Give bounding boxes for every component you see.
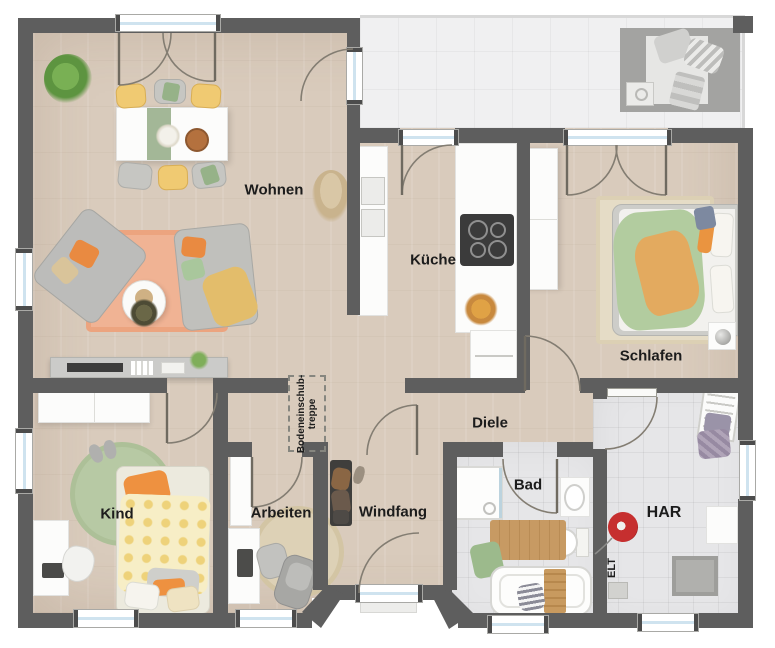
wall (557, 442, 593, 457)
cooktop (460, 214, 514, 266)
window-utility-bottom (637, 613, 699, 632)
wall (457, 442, 503, 457)
wall (347, 18, 360, 49)
dining-chair (154, 79, 186, 104)
pillow (709, 264, 734, 313)
wall (327, 585, 357, 600)
sofa-pillow (181, 236, 207, 258)
wood-bath-mat (490, 520, 566, 560)
double-bed (612, 204, 738, 336)
room-label-har: HAR (647, 504, 682, 522)
sideboard (50, 357, 228, 378)
oven (361, 209, 385, 237)
window-office-bottom (235, 609, 297, 628)
window-kids-bottom (73, 609, 139, 628)
box-lid (676, 560, 714, 592)
dining-chair (117, 161, 154, 190)
window-bath-bottom (487, 615, 549, 634)
room-label-kueche: Küche (410, 252, 456, 269)
wall (517, 378, 525, 393)
laptop (42, 563, 64, 578)
tv-remote-tray (67, 363, 123, 372)
shower-drain (483, 502, 496, 515)
attic-stairs-outline: Bodeneinschub- treppe (288, 375, 326, 452)
terrace-tray (626, 82, 654, 106)
wall (593, 393, 607, 399)
basin-bowl (564, 484, 585, 511)
wall (420, 585, 452, 600)
window-utility-right (739, 440, 756, 501)
room-label-wohnen: Wohnen (245, 182, 304, 199)
fridge-handle (475, 355, 513, 357)
wall (347, 128, 400, 143)
office-cabinet (230, 456, 252, 526)
fridge (470, 330, 517, 380)
carafe (635, 88, 648, 101)
jacket (330, 467, 352, 492)
wall (18, 378, 167, 393)
ball-lamp (715, 329, 731, 345)
window-kids-left (15, 428, 33, 494)
wall (443, 442, 457, 590)
flower-vase (155, 124, 181, 148)
kids-bed (116, 466, 210, 614)
terrace-mat (620, 28, 740, 112)
office-desk (228, 528, 260, 604)
terrace-edge-top (360, 15, 745, 18)
window-living-left (15, 248, 33, 311)
room-label-arbeiten: Arbeiten (251, 505, 312, 522)
floor-plant (130, 298, 158, 328)
napkin (200, 164, 221, 186)
dining-table (116, 107, 228, 161)
nightstand (708, 322, 736, 350)
wall (347, 143, 360, 315)
pampas-plant (312, 170, 350, 222)
sofa-pillow (180, 257, 206, 282)
terrace-edge-right (742, 18, 745, 128)
serving-bowl (185, 128, 209, 152)
french-door-living (115, 14, 221, 32)
laundry-basket (697, 428, 732, 459)
wall (517, 143, 530, 390)
floor-plan: Wohnen Küche Schlafen Diele Kind Arbeite… (0, 0, 775, 648)
shower-glass (499, 468, 502, 518)
bag (333, 510, 349, 524)
kitchen-tall-cabinets (358, 146, 388, 316)
dining-chair (158, 164, 189, 190)
wall (313, 442, 328, 590)
fruit-bowl (464, 292, 498, 326)
pillow (165, 585, 200, 613)
kids-wardrobe (38, 390, 150, 423)
bathtub (490, 566, 592, 616)
napkin (162, 82, 181, 103)
storage-box (672, 556, 718, 596)
washbasin (560, 477, 590, 517)
wall (213, 378, 228, 613)
lounge-cushion (283, 561, 314, 593)
pillow (123, 581, 160, 611)
utility-cabinet (706, 506, 738, 544)
wall (593, 449, 607, 628)
wall (213, 442, 252, 457)
room-label-windfang: Windfang (359, 504, 427, 521)
dining-chair (191, 160, 228, 189)
wall (405, 378, 517, 393)
bath-caddy (544, 569, 566, 613)
room-label-bad: Bad (514, 477, 542, 494)
oven (361, 177, 385, 205)
terrace-corner-post (733, 16, 753, 33)
dining-chair (190, 83, 222, 109)
coat-rack (330, 460, 352, 526)
wall (18, 18, 33, 628)
room-label-kind: Kind (100, 506, 133, 523)
monitor (237, 549, 253, 577)
elt-label: ELT (606, 558, 618, 578)
small-plant (189, 350, 209, 370)
attic-stairs-label: Bodeneinschub- treppe (296, 374, 318, 452)
elt-box (608, 582, 628, 599)
dining-chair (115, 83, 147, 109)
wall (580, 378, 753, 393)
potted-plant (44, 54, 92, 104)
pillow-denim (693, 205, 717, 230)
kitchen-counter (455, 143, 517, 333)
wall (738, 128, 753, 440)
sofa (173, 222, 259, 331)
rolled-towel (516, 582, 546, 612)
utility-door-leaf (607, 388, 657, 397)
room-label-schlafen: Schlafen (620, 348, 683, 365)
terrace-towel (668, 71, 705, 111)
decor-stack (161, 362, 185, 374)
front-door (355, 584, 423, 603)
wardrobe-divider (94, 391, 95, 422)
throw-blanket (199, 263, 261, 329)
wall (738, 499, 753, 628)
room-label-diele: Diele (472, 415, 508, 432)
wall (455, 128, 565, 143)
french-door-bedroom (563, 129, 672, 146)
terrace-door-living (346, 47, 363, 105)
books (131, 361, 153, 375)
terrace-door-kitchen (398, 129, 459, 146)
